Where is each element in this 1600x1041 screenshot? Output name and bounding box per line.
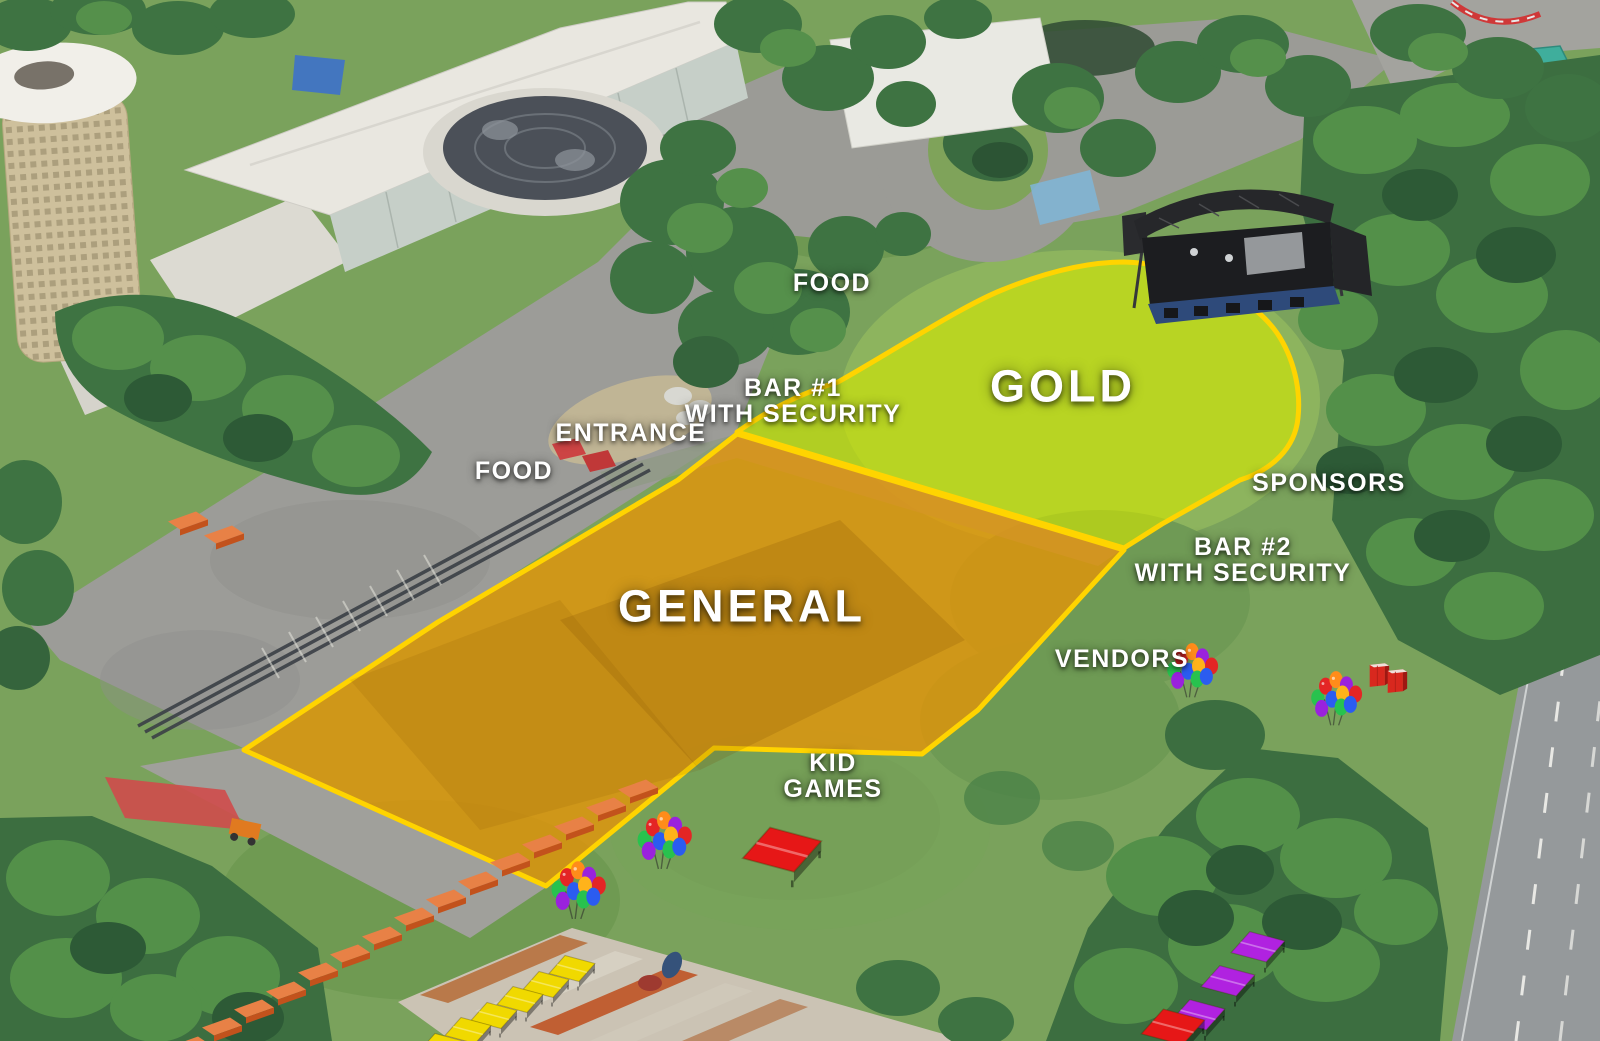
bar-2-line-2: WITH SECURITY — [1135, 560, 1352, 586]
kid-games-line-2: GAMES — [783, 776, 882, 802]
marker-label-food-west: FOOD — [475, 458, 553, 484]
marker-label-bar-1: BAR #1 WITH SECURITY — [685, 375, 902, 428]
marker-label-kid-games: KID GAMES — [783, 750, 882, 803]
kid-games-line-1: KID — [783, 750, 882, 776]
marker-label-entrance: ENTRANCE — [556, 420, 707, 446]
marker-label-vendors: VENDORS — [1055, 646, 1189, 672]
marker-label-sponsors: SPONSORS — [1252, 470, 1406, 496]
marker-label-bar-2: BAR #2 WITH SECURITY — [1135, 534, 1352, 587]
event-site-map: FOOD BAR #1 WITH SECURITY ENTRANCE FOOD … — [0, 0, 1600, 1041]
bar-1-line-2: WITH SECURITY — [685, 401, 902, 427]
zone-label-general: GENERAL — [618, 582, 866, 629]
zone-label-gold: GOLD — [990, 362, 1136, 409]
bar-1-line-1: BAR #1 — [685, 375, 902, 401]
map-canvas — [0, 0, 1600, 1041]
marker-label-food-north: FOOD — [793, 270, 871, 296]
bar-2-line-1: BAR #2 — [1135, 534, 1352, 560]
